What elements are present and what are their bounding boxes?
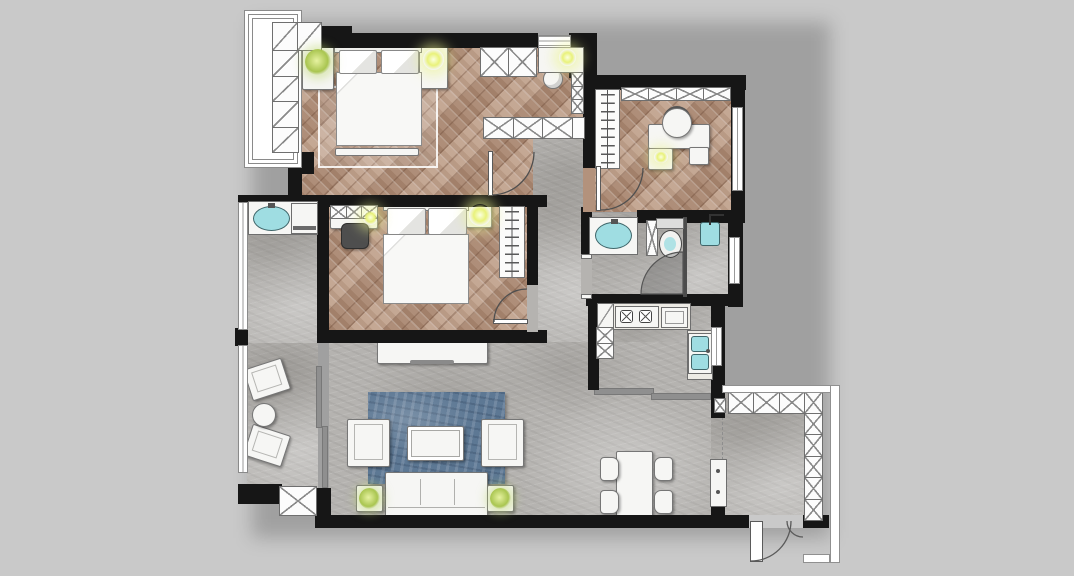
bed-master-bench <box>335 148 419 156</box>
wardrobe-panel <box>272 101 299 128</box>
entry-console-cabinet <box>710 459 727 507</box>
wardrobe-panel <box>542 117 573 139</box>
office-chair-study <box>662 108 692 138</box>
opening-bedroom2-door <box>527 285 538 332</box>
shoe-cabinet-entry-top <box>728 391 805 414</box>
cabinet-panel <box>779 391 805 414</box>
kitchen-corner-cabinet <box>597 303 614 328</box>
lamp-nightstand-bedroom2 <box>469 204 491 226</box>
shelf-panel <box>330 205 347 219</box>
wall-dining-bottom <box>609 515 749 528</box>
door-jamb-bathroom-bottom <box>581 294 592 299</box>
bed-master-duvet <box>336 72 422 146</box>
wardrobe-panel <box>297 22 323 51</box>
shower-head <box>700 222 720 246</box>
cabinet-panel <box>571 86 584 101</box>
window-shower-right <box>729 237 740 284</box>
window-study-right <box>732 107 743 191</box>
cabinet-panel <box>804 499 823 522</box>
cabinet-panel <box>676 87 704 101</box>
wardrobe-end <box>572 117 585 139</box>
entry-frame-top <box>722 385 840 393</box>
cabinet-knob <box>716 490 720 494</box>
door-jamb-bathroom-top <box>581 254 592 259</box>
stove-burner-right <box>639 310 652 323</box>
lamp-study-desk <box>654 151 668 163</box>
wall-bedroom2-right <box>527 195 538 287</box>
washing-machine-panel <box>293 226 316 230</box>
balcony-round-table <box>252 403 276 427</box>
dining-chair <box>600 490 619 514</box>
wall-bedroom2-left <box>317 195 329 343</box>
cabinet-panel <box>804 434 823 457</box>
dining-chair <box>654 457 673 481</box>
door-leaf-suite <box>488 151 493 196</box>
dining-chair <box>654 490 673 514</box>
bathroom-washbasin <box>595 222 632 249</box>
cabinet-panel <box>753 391 779 414</box>
cabinet-panel <box>804 477 823 500</box>
wardrobe-panel <box>513 117 544 139</box>
cabinet-study-top <box>621 87 731 101</box>
sofa-cushion-divider <box>420 479 421 505</box>
bed-bedroom2-duvet <box>383 234 469 304</box>
kitchen-appliance-inner <box>665 311 684 324</box>
laundry-sink <box>253 206 290 231</box>
window-balcony-left <box>238 345 248 473</box>
wardrobe-panel <box>272 22 298 51</box>
toilet-tank <box>656 218 684 229</box>
shelf-panel <box>346 205 363 219</box>
cabinet-panel <box>714 398 726 413</box>
wardrobe-panel <box>508 47 537 77</box>
plant-side-table-right <box>490 488 511 509</box>
shoe-cabinet-entry-right <box>804 391 823 521</box>
pillow <box>428 208 467 235</box>
cabinet-balcony-box <box>279 486 317 516</box>
armchair-left <box>347 419 390 467</box>
coffee-table <box>407 426 464 461</box>
faucet-kitchen <box>706 349 710 353</box>
cabinet-panel <box>804 456 823 479</box>
cabinet-panel <box>279 486 317 516</box>
door-leaf-bedroom2 <box>493 319 528 324</box>
cabinet-kitchen-left <box>596 327 614 359</box>
wall-balcony-mid <box>235 328 248 346</box>
plant-side-table-left <box>359 488 380 509</box>
lamp-desk-bedroom2 <box>363 210 378 225</box>
window-closet-top <box>538 35 571 48</box>
bay-wardrobe-top-row <box>272 22 322 51</box>
kitchen-appliance <box>661 307 688 328</box>
dining-chair <box>600 457 619 481</box>
dining-table <box>616 451 653 519</box>
desk-study-shelf <box>689 147 709 165</box>
cabinet-panel <box>596 327 614 344</box>
lamp-vanity <box>559 49 576 66</box>
pillow <box>387 208 426 235</box>
toilet-bowl-water <box>664 237 676 251</box>
stove-burner-left <box>620 310 633 323</box>
entry-frame-right <box>830 385 840 563</box>
cabinet-panel <box>596 343 614 360</box>
wardrobe-panel <box>272 50 299 77</box>
wall-living-top <box>317 330 547 343</box>
opening-study-door <box>583 168 595 212</box>
kitchen-sink-basin-bottom <box>691 354 709 370</box>
armchair-right <box>481 419 524 467</box>
bay-wardrobe-column <box>272 50 299 153</box>
wardrobe-hangers-bedroom2 <box>499 206 525 278</box>
wardrobe-suite-top <box>480 47 537 77</box>
toilet-bowl <box>659 230 682 258</box>
pillow <box>339 50 377 74</box>
window-kitchen-right <box>711 327 722 366</box>
wardrobe-hangers-study <box>595 89 620 169</box>
wardrobe-panel <box>483 117 514 139</box>
cabinet-closet-column <box>571 72 584 114</box>
door-leaf-entry <box>750 521 763 562</box>
office-chair-bedroom2 <box>341 223 369 249</box>
cabinet-panel <box>804 413 823 436</box>
pillow <box>381 50 419 74</box>
wardrobe-panel <box>272 127 299 154</box>
wardrobe-panel <box>480 47 509 77</box>
cabinet-panel <box>728 391 754 414</box>
wall-living-bottom <box>317 515 609 528</box>
sliding-door-balcony-b <box>322 426 328 488</box>
sliding-door-kitchen-a <box>594 388 654 395</box>
cabinet-panel <box>571 99 584 114</box>
cabinet-panel <box>804 391 823 414</box>
entry-frame-bottom <box>803 554 830 563</box>
cabinet-panel <box>648 87 676 101</box>
floorplan-canvas <box>0 0 1074 576</box>
sofa-cushion-divider <box>454 479 455 505</box>
wall-balcony-bottom <box>238 484 282 504</box>
wall-bathroom-divider <box>683 217 687 297</box>
sliding-door-kitchen-b <box>651 393 711 400</box>
opening-bathroom-door <box>581 259 592 296</box>
sofa <box>385 472 488 520</box>
tv-set <box>410 360 454 364</box>
faucet-bathroom <box>611 219 618 224</box>
window-laundry-left <box>238 202 248 330</box>
cabinet-panel <box>703 87 731 101</box>
faucet-laundry <box>268 203 275 208</box>
wardrobe-suite-lower <box>483 117 585 139</box>
sliding-door-balcony-a <box>316 366 322 428</box>
cabinet-knob <box>716 469 720 473</box>
plant-nightstand-left <box>305 49 331 75</box>
cabinet-entry-mini <box>714 398 726 413</box>
cabinet-panel <box>571 72 584 87</box>
cabinet-panel <box>621 87 649 101</box>
wardrobe-panel <box>272 76 299 103</box>
door-leaf-study <box>596 166 601 211</box>
shower-arm <box>709 214 724 225</box>
lamp-nightstand-right <box>423 49 444 70</box>
